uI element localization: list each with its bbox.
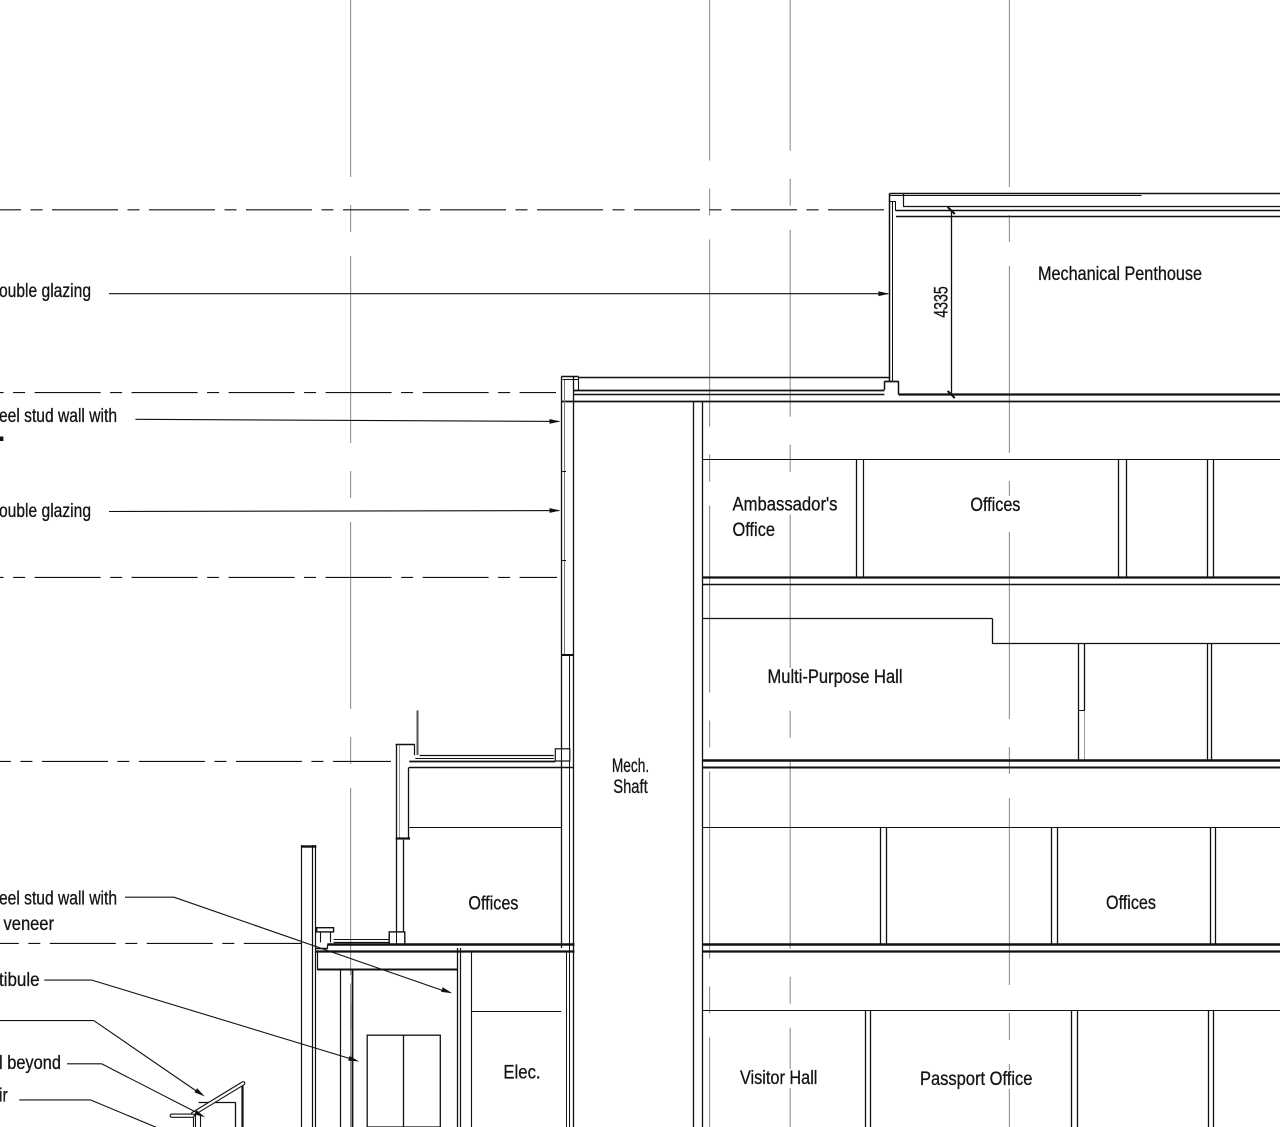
svg-text:Office: Office: [733, 520, 776, 541]
svg-text:Offices: Offices: [1106, 893, 1156, 914]
svg-text:Multi-Purpose Hall: Multi-Purpose Hall: [768, 667, 903, 688]
svg-text:Visitor Hall: Visitor Hall: [740, 1068, 818, 1089]
svg-text:eel stud wall with: eel stud wall with: [0, 889, 117, 910]
svg-text:Mechanical Penthouse: Mechanical Penthouse: [1038, 264, 1202, 285]
svg-text:ir: ir: [0, 1086, 8, 1107]
svg-text:Mech.: Mech.: [612, 756, 649, 777]
svg-text:Offices: Offices: [468, 894, 518, 915]
svg-text:eel stud wall with: eel stud wall with: [0, 406, 117, 427]
svg-text:tibule: tibule: [0, 970, 40, 991]
svg-text:l beyond: l beyond: [0, 1053, 61, 1074]
svg-text:4335: 4335: [932, 286, 953, 318]
svg-text:ouble glazing: ouble glazing: [0, 501, 91, 522]
svg-text:Passport Office: Passport Office: [920, 1069, 1033, 1090]
svg-text:Shaft: Shaft: [613, 777, 648, 798]
svg-text:Offices: Offices: [970, 495, 1020, 516]
svg-text:veneer: veneer: [4, 914, 55, 935]
svg-text:Elec.: Elec.: [503, 1063, 540, 1084]
svg-text:Ambassador's: Ambassador's: [733, 495, 838, 516]
svg-text:ouble glazing: ouble glazing: [0, 281, 91, 302]
